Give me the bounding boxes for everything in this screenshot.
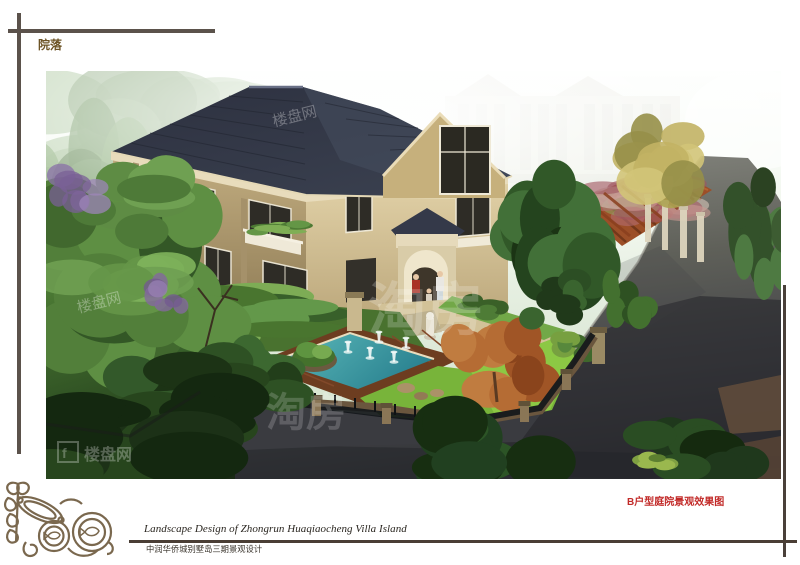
- svg-text:f: f: [62, 445, 67, 461]
- svg-text:楼盘网: 楼盘网: [84, 445, 132, 464]
- svg-text:淘房: 淘房: [368, 278, 484, 343]
- svg-text:淘房: 淘房: [266, 391, 346, 435]
